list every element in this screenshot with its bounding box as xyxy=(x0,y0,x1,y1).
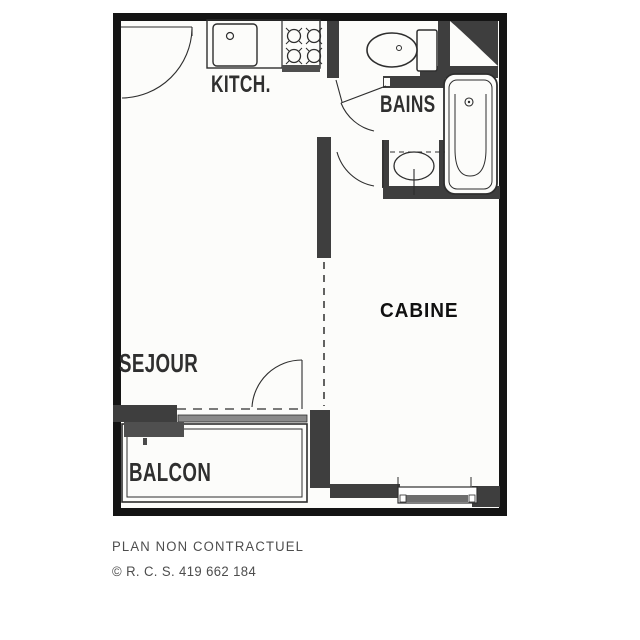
sink-icon xyxy=(213,24,257,66)
rcs-registration: © R. C. S. 419 662 184 xyxy=(112,565,256,579)
floor-plan-drawing xyxy=(0,0,640,640)
floor-plan: KITCH. BAINS CABINE SEJOUR BALCON PLAN N… xyxy=(0,0,640,640)
room-label-balcony: BALCON xyxy=(129,459,211,485)
room-label-living: SEJOUR xyxy=(119,350,198,376)
bathtub-icon xyxy=(444,74,497,194)
central-partition-wall xyxy=(317,137,331,258)
plan-disclaimer: PLAN NON CONTRACTUEL xyxy=(112,540,304,554)
room-label-kitchen: KITCH. xyxy=(211,73,271,97)
room-label-cabin: CABINE xyxy=(380,301,459,321)
balcony-threshold xyxy=(178,415,307,422)
room-label-bathroom: BAINS xyxy=(380,93,436,117)
hob-front-edge xyxy=(282,65,320,72)
